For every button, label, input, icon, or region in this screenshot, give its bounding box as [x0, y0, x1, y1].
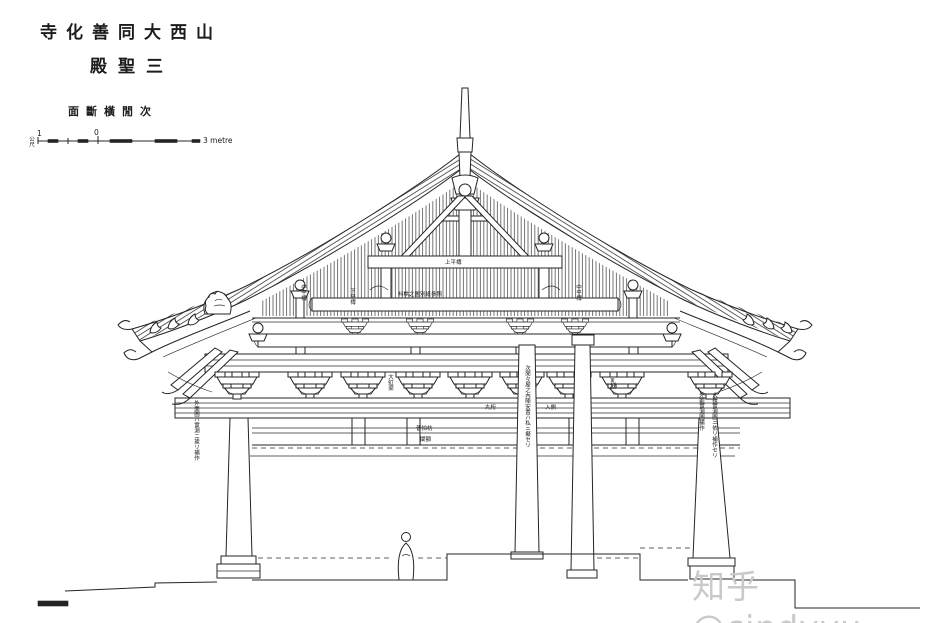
platform-ground — [38, 548, 920, 608]
annotation-label: 次閒々屋之內陣安置ハ私ニ擬セリ — [524, 364, 531, 448]
drawing-subtitle: 面斷橫閒次 — [68, 103, 222, 119]
annotation-label: 下平槫 — [349, 288, 356, 306]
left-eave-bracket — [162, 348, 238, 404]
interior-column-rear — [571, 345, 594, 570]
title-block: 寺化善同大西山 殿聖三 面斷橫閒次 — [40, 18, 222, 119]
ridge-finial — [452, 88, 478, 194]
left-eave-column — [226, 418, 252, 556]
scale-tick-zero: 0 — [94, 128, 99, 137]
annotation-label: 乳栿 — [609, 377, 616, 391]
scale-unit-label: 公尺 — [28, 136, 35, 148]
annotation-label: 丸桁 — [485, 403, 497, 411]
annotation-label: 入側 — [545, 403, 557, 411]
annotation-label: 枓栱之圖別紙參照 — [398, 290, 443, 298]
annotation-label: 中平槫 — [300, 283, 307, 302]
annotation-label: 普拍枋 — [416, 424, 433, 432]
scale-bar: 公尺 1 0 3 metre — [28, 128, 233, 148]
annotation-label: 闌額 — [420, 435, 432, 443]
annotation-label: 外觀實測圖補作 — [698, 391, 705, 432]
scanned-drawing-page: 公尺 1 0 3 metre — [0, 0, 928, 623]
drawing-title-line2: 殿聖三 — [90, 52, 222, 77]
annotation-label: 大樣實測圖ニ依リ補作セリ — [711, 391, 718, 459]
scale-tick-one: 1 — [37, 129, 42, 138]
scale-right-label: 3 metre — [203, 136, 233, 145]
annotation-label: 大虹梁 — [387, 373, 394, 392]
scale-figure — [398, 533, 413, 581]
roof-truss — [291, 184, 642, 318]
annotation-label: 中平槫 — [575, 283, 582, 302]
annotation-label: 外面圖ハ實測ニ據リ補作 — [193, 399, 200, 462]
annotation-label: 上平槫 — [445, 258, 462, 266]
drawing-title-line1: 寺化善同大西山 — [40, 18, 222, 43]
